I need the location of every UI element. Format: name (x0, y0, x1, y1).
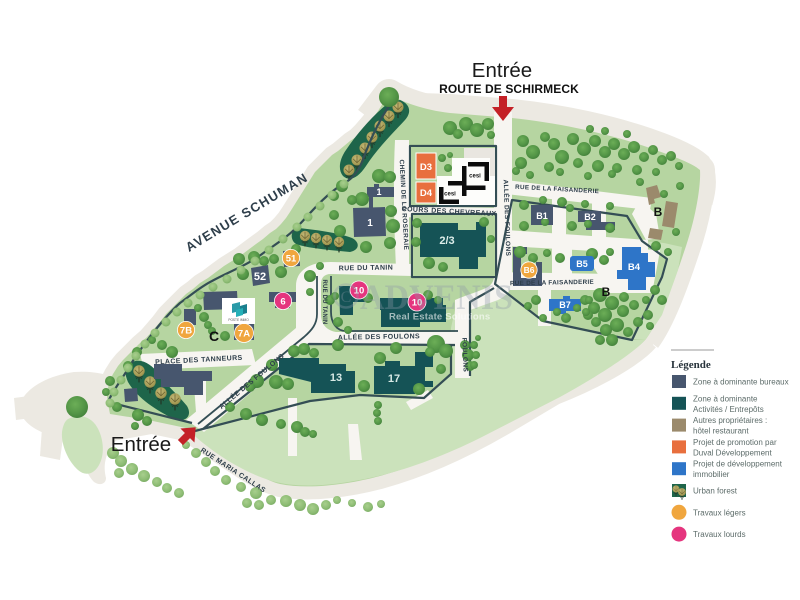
svg-text:B5: B5 (576, 259, 588, 269)
svg-text:cesi: cesi (444, 192, 456, 198)
svg-text:Travaux lourds: Travaux lourds (693, 530, 746, 539)
svg-text:Zone à dominante bureaux: Zone à dominante bureaux (693, 378, 789, 387)
svg-text:B7: B7 (559, 300, 571, 310)
svg-text:B1: B1 (536, 211, 548, 221)
svg-text:B: B (654, 205, 663, 219)
svg-text:7B: 7B (180, 325, 192, 336)
svg-text:52: 52 (254, 271, 266, 283)
svg-text:RUE DU TANIN: RUE DU TANIN (321, 280, 327, 325)
svg-text:1: 1 (367, 218, 373, 229)
svg-text:C: C (341, 289, 352, 306)
svg-text:Duval Développement: Duval Développement (693, 448, 772, 457)
svg-text:immobilier: immobilier (693, 470, 730, 479)
svg-text:Zone à dominante: Zone à dominante (693, 394, 758, 403)
svg-text:2/3: 2/3 (439, 235, 454, 247)
svg-text:RUE DU TANIN: RUE DU TANIN (339, 265, 394, 273)
svg-text:Projet de développement: Projet de développement (693, 460, 783, 469)
svg-text:Real Estate Solutions: Real Estate Solutions (389, 312, 490, 323)
svg-text:Entrée: Entrée (472, 59, 532, 82)
svg-text:D4: D4 (420, 188, 433, 199)
svg-text:Autres propriétaires :: Autres propriétaires : (693, 416, 767, 425)
svg-text:B4: B4 (628, 262, 641, 273)
svg-text:Entrée: Entrée (111, 433, 171, 456)
svg-text:D3: D3 (420, 162, 432, 173)
svg-text:51: 51 (286, 253, 297, 264)
svg-text:Activités / Entrepôts: Activités / Entrepôts (693, 405, 764, 414)
svg-text:RUE DE LA FAISANDERIE: RUE DE LA FAISANDERIE (510, 279, 594, 287)
svg-text:B2: B2 (584, 212, 596, 222)
svg-text:hôtel restaurant: hôtel restaurant (693, 427, 749, 436)
svg-text:Travaux légers: Travaux légers (693, 508, 746, 517)
svg-text:FOULONS: FOULONS (460, 338, 468, 373)
svg-text:13: 13 (330, 372, 342, 384)
svg-text:cesi: cesi (469, 174, 481, 180)
svg-text:Projet de promotion par: Projet de promotion par (693, 438, 777, 447)
svg-text:1: 1 (376, 187, 381, 197)
svg-text:ROUTE DE SCHIRMECK: ROUTE DE SCHIRMECK (439, 82, 579, 96)
svg-text:7A: 7A (238, 328, 250, 339)
svg-text:B: B (602, 285, 611, 299)
svg-text:17: 17 (388, 373, 400, 385)
svg-text:POSTE IMMO: POSTE IMMO (228, 318, 249, 322)
svg-text:C: C (209, 328, 219, 344)
svg-text:6: 6 (280, 296, 285, 307)
svg-text:Légende: Légende (671, 359, 711, 371)
svg-text:Urban forest: Urban forest (693, 487, 738, 496)
svg-text:B6: B6 (524, 265, 535, 275)
